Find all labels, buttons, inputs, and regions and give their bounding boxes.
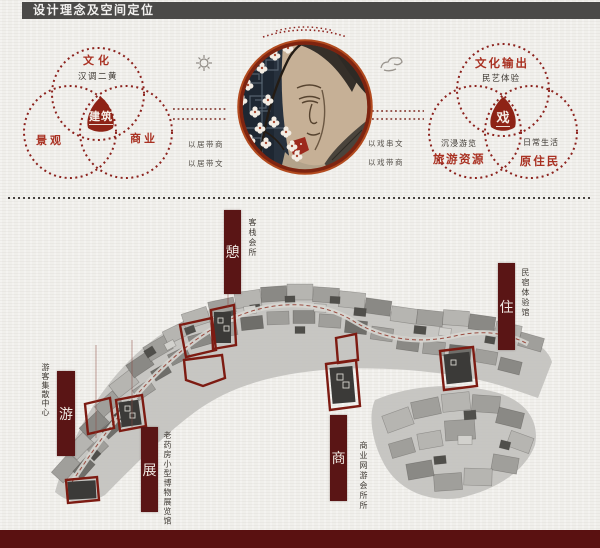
- section-separator-dotted-line: [8, 197, 592, 199]
- map-base-blob: [371, 386, 535, 499]
- marker-label-commerce: 商业网游会所所: [358, 441, 368, 529]
- marker-char-rest: 憩: [226, 242, 240, 262]
- building-blocks: [51, 284, 544, 491]
- right-venn-right-label: 原住民: [509, 153, 571, 169]
- site-map: [51, 284, 552, 503]
- marker-label-tour: 游客集散中心: [40, 363, 50, 421]
- right-venn-right-sublabel: 日常生活: [510, 137, 572, 148]
- marker-banner-exhibit: 展: [141, 427, 158, 512]
- footer-bar: [0, 530, 600, 548]
- connector-hairlines: [96, 294, 228, 438]
- anchor-buildings: [68, 312, 473, 500]
- design-board: 设计理念及空间定位: [0, 0, 600, 548]
- face-features: [297, 85, 325, 150]
- right-venn-left-label: 旅游资源: [423, 151, 495, 167]
- marker-label-stay: 民宿体验馆: [520, 268, 530, 348]
- right-venn-left-sublabel: 沉浸游览: [428, 138, 490, 149]
- marker-label-rest: 客栈会所: [247, 218, 257, 274]
- left-venn-center-label: 建筑: [81, 108, 121, 124]
- marker-char-exhibit: 展: [143, 460, 157, 480]
- left-venn-left-label: 景观: [28, 132, 72, 148]
- marker-banner-commerce: 商: [330, 415, 347, 501]
- anchor-building-marks: [125, 318, 456, 418]
- left-link-note-2: 以居带文: [188, 158, 224, 169]
- left-link-note-1: 以居带商: [188, 139, 224, 150]
- marker-banner-rest: 憩: [224, 210, 241, 294]
- highlight-outlines: [66, 305, 477, 503]
- left-venn-top-label: 文化: [75, 52, 121, 68]
- marker-label-exhibit: 老药房小型博物展览馆: [162, 431, 172, 531]
- opera-artwork: [237, 40, 370, 180]
- cloud-icon: [381, 58, 402, 71]
- left-venn-top-sublabel: 汉调二黄: [70, 70, 126, 82]
- lattice-pattern: [240, 48, 284, 168]
- center-circle-image: [237, 27, 372, 180]
- right-link-note-1: 以戏串文: [368, 138, 404, 149]
- page-header: 设计理念及空间定位: [22, 2, 600, 19]
- map-base-band: [55, 294, 552, 502]
- page-title: 设计理念及空间定位: [33, 3, 155, 17]
- plum-blossoms: [237, 42, 303, 161]
- sun-icon: [196, 55, 212, 71]
- marker-banner-stay: 住: [498, 263, 515, 350]
- dotted-connector-lines: [173, 109, 424, 119]
- marker-char-commerce: 商: [332, 448, 346, 468]
- right-venn-center-label: 戏: [487, 107, 519, 126]
- right-link-note-2: 以戏带商: [368, 157, 404, 168]
- right-venn-top-label: 文化输出: [471, 55, 533, 71]
- marker-char-tour: 游: [59, 404, 73, 424]
- left-venn-right-label: 商业: [122, 130, 166, 146]
- right-venn-top-sublabel: 民艺体验: [470, 72, 532, 84]
- marker-char-stay: 住: [500, 297, 514, 317]
- marker-banner-tour: 游: [57, 371, 75, 456]
